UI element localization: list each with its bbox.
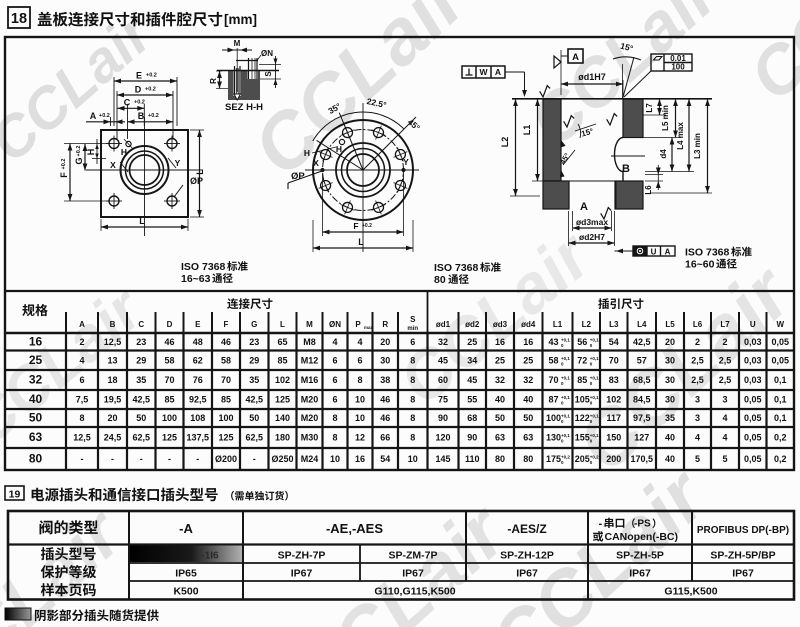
svg-text:40: 40 bbox=[665, 454, 675, 464]
svg-text:K500: K500 bbox=[173, 586, 198, 598]
svg-text:M8: M8 bbox=[303, 337, 316, 347]
svg-text:16~60: 16~60 bbox=[685, 259, 715, 271]
svg-text:-1I6: -1I6 bbox=[201, 551, 219, 562]
svg-text:+0.2: +0.2 bbox=[134, 100, 145, 106]
svg-text:60: 60 bbox=[438, 375, 448, 385]
svg-text:SEZ H-H: SEZ H-H bbox=[225, 102, 263, 113]
svg-text:0: 0 bbox=[590, 381, 593, 386]
svg-text:63: 63 bbox=[523, 433, 533, 443]
svg-text:46: 46 bbox=[380, 413, 390, 423]
svg-text:42,5: 42,5 bbox=[245, 395, 263, 405]
svg-text:[mm]: [mm] bbox=[224, 12, 257, 27]
svg-text:F: F bbox=[353, 221, 358, 231]
svg-text:56: 56 bbox=[577, 337, 587, 347]
svg-text:32: 32 bbox=[523, 375, 533, 385]
svg-text:12: 12 bbox=[355, 433, 365, 443]
svg-text:6: 6 bbox=[357, 355, 362, 365]
svg-text:75: 75 bbox=[438, 395, 448, 405]
svg-text:L7: L7 bbox=[720, 320, 730, 329]
svg-text:83: 83 bbox=[609, 375, 619, 385]
svg-text:4: 4 bbox=[722, 413, 727, 423]
svg-text:0,1: 0,1 bbox=[774, 413, 787, 423]
svg-text:0,03: 0,03 bbox=[744, 337, 762, 347]
svg-text:45: 45 bbox=[467, 375, 477, 385]
svg-text:3: 3 bbox=[695, 395, 700, 405]
svg-text:M: M bbox=[234, 39, 241, 48]
svg-text:90: 90 bbox=[438, 413, 448, 423]
svg-text:25: 25 bbox=[467, 337, 477, 347]
svg-text:+0.2: +0.2 bbox=[61, 159, 67, 170]
svg-text:8: 8 bbox=[410, 355, 415, 365]
svg-text:200: 200 bbox=[606, 454, 621, 464]
svg-text:50: 50 bbox=[29, 411, 43, 425]
svg-text:0,05: 0,05 bbox=[744, 413, 762, 423]
svg-text:2,5: 2,5 bbox=[691, 355, 704, 365]
svg-text:20: 20 bbox=[107, 413, 117, 423]
svg-text:32: 32 bbox=[438, 337, 448, 347]
svg-text:+0.2: +0.2 bbox=[145, 87, 156, 93]
svg-text:58: 58 bbox=[548, 355, 558, 365]
svg-text:-: - bbox=[196, 454, 199, 464]
svg-text:+0.2: +0.2 bbox=[362, 223, 372, 229]
svg-text:55: 55 bbox=[467, 395, 477, 405]
svg-text:40: 40 bbox=[523, 395, 533, 405]
svg-text:ød2: ød2 bbox=[465, 320, 480, 329]
svg-text:CANopen(-BC): CANopen(-BC) bbox=[605, 531, 679, 543]
svg-text:G: G bbox=[74, 157, 84, 164]
svg-text:IP67: IP67 bbox=[516, 568, 538, 580]
svg-text:Ø200: Ø200 bbox=[215, 454, 237, 464]
svg-text:-: - bbox=[599, 518, 603, 530]
svg-text:30: 30 bbox=[380, 355, 390, 365]
svg-text:58: 58 bbox=[221, 355, 231, 365]
svg-text:80: 80 bbox=[523, 454, 533, 464]
svg-text:-AES/Z: -AES/Z bbox=[507, 522, 546, 536]
svg-text:6: 6 bbox=[332, 395, 337, 405]
svg-text:102: 102 bbox=[606, 395, 621, 405]
svg-text:62,5: 62,5 bbox=[132, 433, 150, 443]
svg-text:155: 155 bbox=[575, 433, 590, 443]
svg-text:E: E bbox=[136, 71, 142, 81]
svg-text:50: 50 bbox=[249, 413, 259, 423]
svg-text:6: 6 bbox=[79, 375, 84, 385]
svg-text:16: 16 bbox=[355, 454, 365, 464]
svg-text:85: 85 bbox=[577, 375, 587, 385]
svg-text:L1: L1 bbox=[553, 320, 563, 329]
svg-text:4: 4 bbox=[722, 433, 727, 443]
svg-text:0,05: 0,05 bbox=[771, 337, 789, 347]
svg-text:80: 80 bbox=[434, 274, 446, 286]
svg-text:B: B bbox=[138, 111, 145, 121]
svg-text:ød2H7: ød2H7 bbox=[579, 232, 605, 242]
svg-text:A: A bbox=[665, 248, 671, 257]
svg-text:20: 20 bbox=[380, 337, 390, 347]
svg-text:205: 205 bbox=[575, 454, 590, 464]
svg-text:16: 16 bbox=[29, 334, 43, 348]
svg-text:3: 3 bbox=[722, 395, 727, 405]
svg-text:42,5: 42,5 bbox=[132, 395, 150, 405]
svg-text:A: A bbox=[572, 52, 579, 63]
svg-text:+0,1: +0,1 bbox=[561, 414, 570, 419]
svg-text:0: 0 bbox=[561, 361, 564, 366]
svg-text:Y: Y bbox=[403, 157, 409, 167]
svg-text:ISO 7368: ISO 7368 bbox=[181, 261, 226, 273]
svg-text:0,05: 0,05 bbox=[744, 395, 762, 405]
svg-text:110: 110 bbox=[465, 454, 480, 464]
svg-text:H: H bbox=[304, 148, 310, 158]
svg-text:8: 8 bbox=[410, 375, 415, 385]
svg-text:137,5: 137,5 bbox=[186, 433, 209, 443]
svg-text:23: 23 bbox=[249, 337, 259, 347]
svg-text:SP-ZH-5P: SP-ZH-5P bbox=[616, 550, 664, 562]
svg-text:18: 18 bbox=[107, 375, 117, 385]
svg-text:30: 30 bbox=[665, 395, 675, 405]
svg-text:10: 10 bbox=[330, 454, 340, 464]
svg-text:100: 100 bbox=[218, 413, 233, 423]
svg-text:0: 0 bbox=[561, 401, 564, 406]
svg-text:66: 66 bbox=[380, 433, 390, 443]
svg-text:SP-ZH-5P/BP: SP-ZH-5P/BP bbox=[710, 550, 775, 562]
svg-text:0: 0 bbox=[590, 460, 593, 465]
svg-text:M12: M12 bbox=[301, 355, 319, 365]
svg-text:12,5: 12,5 bbox=[73, 433, 91, 443]
svg-text:M20: M20 bbox=[301, 413, 319, 423]
svg-text:43: 43 bbox=[548, 337, 558, 347]
svg-text:-: - bbox=[168, 454, 171, 464]
svg-text:130: 130 bbox=[546, 433, 561, 443]
svg-text:8: 8 bbox=[332, 433, 337, 443]
svg-text:L: L bbox=[195, 169, 205, 175]
svg-text:4: 4 bbox=[332, 337, 337, 347]
svg-text:5: 5 bbox=[722, 454, 727, 464]
svg-text:0,05: 0,05 bbox=[771, 355, 789, 365]
svg-text:100: 100 bbox=[162, 413, 177, 423]
svg-text:C: C bbox=[124, 98, 131, 108]
svg-text:5: 5 bbox=[695, 454, 700, 464]
svg-text:R: R bbox=[209, 78, 218, 84]
svg-text:18: 18 bbox=[11, 11, 27, 27]
svg-text:-: - bbox=[253, 454, 256, 464]
svg-text:100: 100 bbox=[546, 413, 561, 423]
svg-text:L7: L7 bbox=[645, 103, 654, 113]
svg-text:54: 54 bbox=[380, 454, 390, 464]
svg-text:7,5: 7,5 bbox=[76, 395, 89, 405]
svg-text:20: 20 bbox=[665, 337, 675, 347]
svg-text:125: 125 bbox=[218, 433, 233, 443]
svg-text:76: 76 bbox=[193, 375, 203, 385]
svg-text:0: 0 bbox=[561, 460, 564, 465]
svg-text:6: 6 bbox=[332, 355, 337, 365]
svg-text:IP67: IP67 bbox=[291, 568, 313, 580]
svg-text:35: 35 bbox=[665, 413, 675, 423]
svg-text:2,5: 2,5 bbox=[691, 375, 704, 385]
svg-text:16~63: 16~63 bbox=[181, 273, 211, 285]
svg-text:+0.2: +0.2 bbox=[146, 73, 157, 79]
svg-text:40: 40 bbox=[665, 433, 675, 443]
svg-text:62: 62 bbox=[193, 355, 203, 365]
svg-text:L1: L1 bbox=[522, 125, 532, 136]
svg-text:L3: L3 bbox=[609, 320, 619, 329]
svg-text:ød4: ød4 bbox=[521, 320, 536, 329]
svg-text:105: 105 bbox=[575, 395, 590, 405]
svg-text:M24: M24 bbox=[301, 454, 319, 464]
svg-text:125: 125 bbox=[275, 395, 290, 405]
svg-text:H: H bbox=[86, 149, 96, 156]
svg-text:2: 2 bbox=[79, 337, 84, 347]
svg-text:48: 48 bbox=[193, 337, 203, 347]
svg-text:ød1H7: ød1H7 bbox=[578, 72, 606, 82]
svg-text:A: A bbox=[90, 111, 97, 121]
svg-text:30: 30 bbox=[665, 355, 675, 365]
svg-text:-AE,-AES: -AE,-AES bbox=[326, 521, 383, 536]
svg-text:63: 63 bbox=[29, 430, 43, 444]
svg-text:140: 140 bbox=[275, 413, 290, 423]
svg-text:G110,G115,K500: G110,G115,K500 bbox=[374, 586, 455, 598]
svg-text:16: 16 bbox=[495, 337, 505, 347]
svg-text:-: - bbox=[111, 454, 114, 464]
svg-text:ØN: ØN bbox=[329, 320, 341, 329]
svg-text:25: 25 bbox=[29, 353, 43, 367]
svg-text:0: 0 bbox=[561, 439, 564, 444]
svg-text:180: 180 bbox=[275, 433, 290, 443]
svg-text:0: 0 bbox=[590, 343, 593, 348]
svg-text:IP67: IP67 bbox=[629, 568, 651, 580]
svg-text:117: 117 bbox=[606, 413, 621, 423]
svg-text:+0,1: +0,1 bbox=[561, 433, 570, 438]
svg-text:IP65: IP65 bbox=[175, 568, 197, 580]
svg-text:25: 25 bbox=[495, 355, 505, 365]
svg-text:ØP: ØP bbox=[291, 171, 305, 182]
svg-text:2: 2 bbox=[722, 337, 727, 347]
svg-text:CCLair: CCLair bbox=[735, 0, 800, 115]
svg-text:70: 70 bbox=[164, 375, 174, 385]
svg-text:M: M bbox=[306, 320, 313, 329]
svg-text:ød3: ød3 bbox=[493, 320, 508, 329]
svg-text:d4: d4 bbox=[659, 149, 668, 159]
svg-text:+0,1: +0,1 bbox=[590, 414, 599, 419]
svg-text:40: 40 bbox=[495, 395, 505, 405]
svg-text:E: E bbox=[195, 320, 201, 329]
svg-text:+0,1: +0,1 bbox=[590, 395, 599, 400]
svg-text:23: 23 bbox=[136, 337, 146, 347]
svg-text:F: F bbox=[59, 172, 69, 178]
svg-text:125: 125 bbox=[162, 433, 177, 443]
svg-text:B: B bbox=[622, 163, 630, 175]
svg-text:87: 87 bbox=[548, 395, 558, 405]
svg-text:13: 13 bbox=[107, 355, 117, 365]
svg-text:+0.2: +0.2 bbox=[148, 113, 159, 119]
svg-text:+0,2: +0,2 bbox=[561, 455, 570, 460]
svg-text:12,5: 12,5 bbox=[104, 337, 122, 347]
svg-text:42,5: 42,5 bbox=[633, 337, 651, 347]
svg-text:4: 4 bbox=[357, 337, 362, 347]
svg-text:46: 46 bbox=[221, 337, 231, 347]
svg-text:80: 80 bbox=[29, 452, 43, 466]
svg-text:90: 90 bbox=[467, 433, 477, 443]
svg-text:D: D bbox=[167, 320, 173, 329]
svg-text:10: 10 bbox=[355, 395, 365, 405]
svg-text:34: 34 bbox=[467, 355, 477, 365]
svg-text:G115,K500: G115,K500 bbox=[664, 586, 717, 598]
svg-text:X: X bbox=[110, 160, 116, 170]
svg-text:+0,1: +0,1 bbox=[561, 376, 570, 381]
svg-text:F: F bbox=[224, 320, 229, 329]
svg-text:45: 45 bbox=[438, 355, 448, 365]
svg-text:G: G bbox=[251, 320, 257, 329]
svg-text:46: 46 bbox=[164, 337, 174, 347]
svg-text:L6: L6 bbox=[693, 320, 703, 329]
svg-text:62,5: 62,5 bbox=[245, 433, 263, 443]
svg-text:6: 6 bbox=[410, 337, 415, 347]
svg-text:122: 122 bbox=[575, 413, 590, 423]
svg-text:0,2: 0,2 bbox=[774, 454, 787, 464]
svg-text:70: 70 bbox=[221, 375, 231, 385]
svg-text:120: 120 bbox=[435, 433, 450, 443]
svg-text:L5 min: L5 min bbox=[661, 105, 670, 131]
svg-text:3: 3 bbox=[695, 413, 700, 423]
svg-text:84,5: 84,5 bbox=[633, 395, 651, 405]
svg-text:W: W bbox=[479, 67, 488, 77]
svg-text:ØN: ØN bbox=[261, 49, 273, 58]
svg-text:170,5: 170,5 bbox=[630, 454, 653, 464]
svg-text:85: 85 bbox=[221, 395, 231, 405]
svg-text:150: 150 bbox=[606, 433, 621, 443]
svg-text:M20: M20 bbox=[301, 395, 319, 405]
svg-text:57: 57 bbox=[637, 355, 647, 365]
svg-text:40: 40 bbox=[29, 392, 43, 406]
svg-text:108: 108 bbox=[190, 413, 205, 423]
svg-text:ØP: ØP bbox=[190, 176, 203, 186]
svg-text:+0,1: +0,1 bbox=[561, 356, 570, 361]
svg-text:32: 32 bbox=[495, 375, 505, 385]
svg-text:80: 80 bbox=[495, 454, 505, 464]
svg-text:2,5: 2,5 bbox=[719, 375, 732, 385]
svg-text:10: 10 bbox=[408, 454, 418, 464]
svg-text:IP67: IP67 bbox=[732, 568, 754, 580]
svg-text:0,03: 0,03 bbox=[744, 355, 762, 365]
svg-text:H: H bbox=[336, 144, 342, 154]
svg-text:58: 58 bbox=[164, 355, 174, 365]
svg-text:0,1: 0,1 bbox=[774, 375, 787, 385]
svg-text:35: 35 bbox=[249, 375, 259, 385]
svg-text:SP-ZH-7P: SP-ZH-7P bbox=[278, 550, 326, 562]
svg-text:L2: L2 bbox=[500, 137, 510, 148]
svg-text:Y: Y bbox=[175, 158, 181, 168]
svg-text:8: 8 bbox=[357, 375, 362, 385]
svg-text:24,5: 24,5 bbox=[104, 433, 122, 443]
svg-text:+0.2: +0.2 bbox=[76, 146, 82, 157]
svg-text:72: 72 bbox=[577, 355, 587, 365]
svg-text:68: 68 bbox=[467, 413, 477, 423]
svg-text:38: 38 bbox=[380, 375, 390, 385]
svg-text:W: W bbox=[776, 320, 784, 329]
svg-text:S: S bbox=[264, 71, 273, 77]
svg-text:70: 70 bbox=[548, 375, 558, 385]
svg-text:+0,1: +0,1 bbox=[590, 376, 599, 381]
svg-text:M16: M16 bbox=[301, 375, 319, 385]
svg-text:0,05: 0,05 bbox=[744, 433, 762, 443]
svg-text:ISO 7368: ISO 7368 bbox=[434, 262, 479, 274]
svg-text:0: 0 bbox=[590, 361, 593, 366]
svg-text:-: - bbox=[140, 454, 143, 464]
svg-text:PROFIBUS DP(-BP): PROFIBUS DP(-BP) bbox=[697, 525, 789, 536]
svg-text:16: 16 bbox=[523, 337, 533, 347]
svg-text:min: min bbox=[407, 326, 418, 332]
svg-text:A: A bbox=[580, 201, 588, 213]
svg-text:-A: -A bbox=[179, 521, 193, 536]
svg-text:0,03: 0,03 bbox=[744, 375, 762, 385]
svg-text:C: C bbox=[138, 320, 144, 329]
svg-text:70: 70 bbox=[609, 355, 619, 365]
svg-text:63: 63 bbox=[495, 433, 505, 443]
svg-text:L4 max: L4 max bbox=[676, 122, 685, 150]
svg-text:+0,1: +0,1 bbox=[590, 337, 599, 342]
svg-text:X: X bbox=[313, 158, 319, 168]
svg-text:+0,2: +0,2 bbox=[590, 455, 599, 460]
svg-text:68,5: 68,5 bbox=[633, 375, 651, 385]
svg-text:46: 46 bbox=[380, 395, 390, 405]
svg-text:92,5: 92,5 bbox=[189, 395, 207, 405]
svg-text:2,5: 2,5 bbox=[719, 355, 732, 365]
svg-text:+0,1: +0,1 bbox=[590, 356, 599, 361]
svg-text:U: U bbox=[651, 248, 657, 257]
svg-text:8: 8 bbox=[410, 413, 415, 423]
svg-text:50: 50 bbox=[523, 413, 533, 423]
svg-text:0,2: 0,2 bbox=[774, 433, 787, 443]
svg-text:0: 0 bbox=[561, 343, 564, 348]
svg-text:M30: M30 bbox=[301, 433, 319, 443]
svg-text:A: A bbox=[495, 67, 501, 77]
svg-text:175: 175 bbox=[546, 454, 561, 464]
svg-text:10: 10 bbox=[355, 413, 365, 423]
svg-text:ISO 7368: ISO 7368 bbox=[685, 247, 730, 259]
svg-text:+0.2: +0.2 bbox=[99, 113, 110, 119]
svg-text:8: 8 bbox=[79, 413, 84, 423]
svg-text:L: L bbox=[139, 216, 145, 226]
svg-text:-: - bbox=[81, 454, 84, 464]
svg-text:+0,1: +0,1 bbox=[561, 337, 570, 342]
svg-text:-PS: -PS bbox=[634, 519, 651, 530]
svg-text:32: 32 bbox=[29, 373, 43, 387]
svg-text:L5: L5 bbox=[665, 320, 675, 329]
svg-text:R: R bbox=[382, 320, 388, 329]
svg-text:L6: L6 bbox=[644, 185, 653, 195]
svg-text:L4: L4 bbox=[637, 320, 647, 329]
svg-text:4: 4 bbox=[695, 433, 700, 443]
svg-text:4: 4 bbox=[79, 355, 84, 365]
svg-text:30: 30 bbox=[665, 375, 675, 385]
svg-text:45°: 45° bbox=[406, 117, 423, 133]
svg-text:85: 85 bbox=[164, 395, 174, 405]
svg-text:ød3max: ød3max bbox=[576, 217, 608, 227]
svg-text:L: L bbox=[280, 320, 285, 329]
svg-text:8: 8 bbox=[332, 413, 337, 423]
svg-text:127: 127 bbox=[634, 433, 649, 443]
svg-text:max: max bbox=[364, 325, 374, 330]
svg-text:29: 29 bbox=[136, 355, 146, 365]
svg-text:L3 min: L3 min bbox=[693, 133, 702, 159]
svg-text:35: 35 bbox=[136, 375, 146, 385]
svg-text:P: P bbox=[355, 320, 361, 329]
svg-text:IP67: IP67 bbox=[402, 568, 424, 580]
svg-text:L: L bbox=[358, 237, 364, 247]
svg-text:+0,1: +0,1 bbox=[590, 433, 599, 438]
svg-text:+0,1: +0,1 bbox=[561, 395, 570, 400]
svg-text:29: 29 bbox=[249, 355, 259, 365]
svg-text:100: 100 bbox=[671, 63, 685, 72]
svg-text:50: 50 bbox=[495, 413, 505, 423]
svg-text:8: 8 bbox=[410, 395, 415, 405]
